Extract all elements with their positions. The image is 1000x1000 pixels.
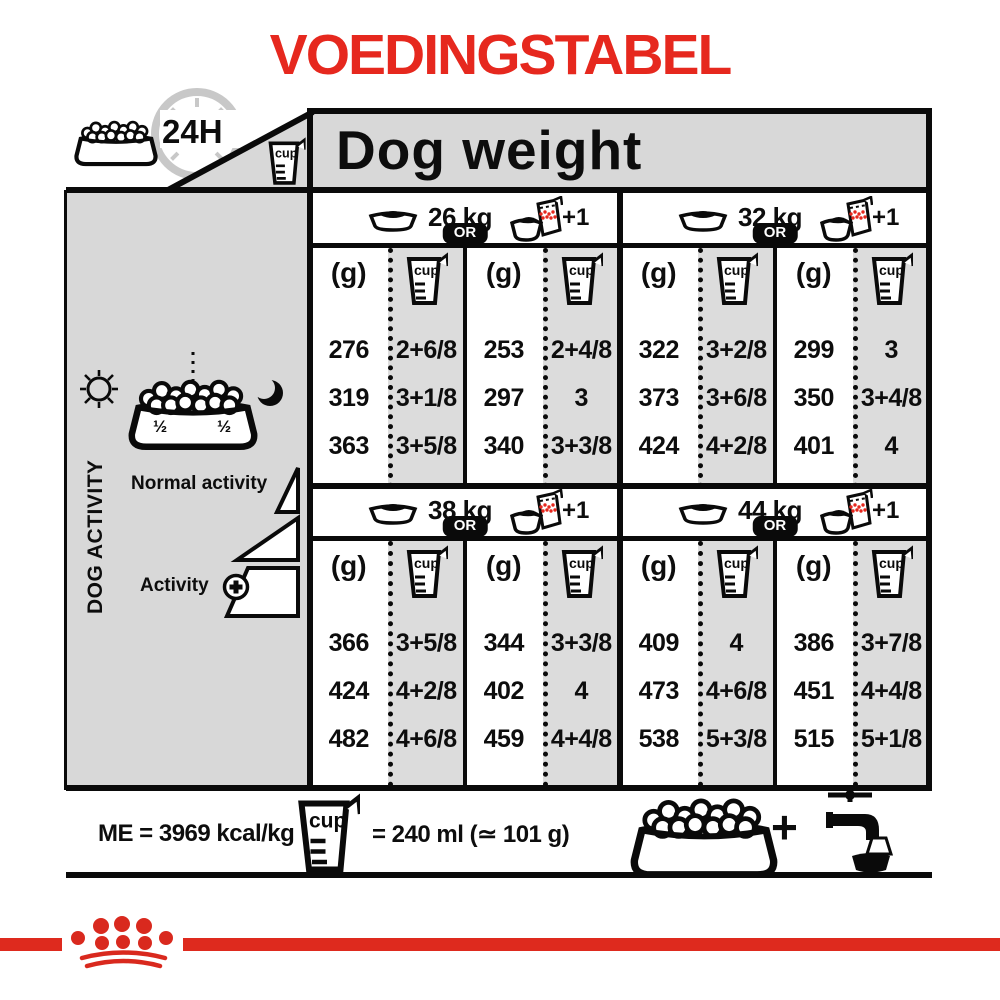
cell-cups: 3+5/8 (388, 629, 466, 658)
cell-cups: 3 (543, 384, 621, 413)
cup-unit-header (853, 545, 931, 599)
cell-cups: 5+3/8 (698, 725, 776, 754)
cup-unit-header (543, 545, 621, 599)
or-badge: OR (753, 223, 798, 244)
cell-cups: 4+2/8 (698, 432, 776, 461)
cup-icon (559, 545, 603, 599)
cup-unit-header (388, 545, 466, 599)
cell-cups: 4+2/8 (388, 677, 466, 706)
cell-grams: 424 (310, 677, 388, 706)
bowl-and-pouch-icon (820, 489, 873, 535)
cell-cups: 3+1/8 (388, 384, 466, 413)
brand-band-left (0, 938, 62, 951)
cell-grams: 344 (465, 629, 543, 658)
cell-cups: 4+4/8 (543, 725, 621, 754)
cell-grams: 451 (775, 677, 853, 706)
cell-cups: 4+4/8 (853, 677, 931, 706)
cup-equivalence-value: = 240 ml (≃ 101 g) (372, 820, 569, 849)
plus-circle-icon (220, 571, 252, 603)
cell-cups: 4 (853, 432, 931, 461)
grams-unit-header: (g) (775, 550, 853, 582)
plus-one-label: +1 (562, 497, 589, 525)
activity-plus-label: Activity (140, 575, 209, 597)
weight-section-44kg: 44 kg +1 OR (g) (g) 409 4 386 3+7/8 473 … (620, 488, 930, 787)
or-badge: OR (443, 516, 488, 537)
grams-unit-header: (g) (310, 257, 388, 289)
grams-unit-header: (g) (465, 257, 543, 289)
grams-unit-header: (g) (310, 550, 388, 582)
cell-grams: 515 (775, 725, 853, 754)
cell-grams: 424 (620, 432, 698, 461)
cell-cups: 4+6/8 (388, 725, 466, 754)
cup-unit-header (698, 252, 776, 306)
footer-bottom-rule (66, 872, 932, 878)
grams-unit-header: (g) (465, 550, 543, 582)
cell-cups: 3+2/8 (698, 336, 776, 365)
cell-cups: 5+1/8 (853, 725, 931, 754)
cell-grams: 299 (775, 336, 853, 365)
cell-cups: 3+5/8 (388, 432, 466, 461)
cell-cups: 4+6/8 (698, 677, 776, 706)
half-left-label: ½ (153, 417, 167, 436)
cup-icon (404, 545, 448, 599)
water-tap-icon (812, 786, 894, 878)
page-title: VOEDINGSTABEL (0, 22, 1000, 88)
cup-unit-header (853, 252, 931, 306)
day-night-ration-icon: ½ ½ (67, 340, 307, 470)
grams-unit-header: (g) (775, 257, 853, 289)
cup-icon (869, 252, 913, 306)
cell-cups: 2+6/8 (388, 336, 466, 365)
cell-grams: 366 (310, 629, 388, 658)
brand-band-right (183, 938, 1000, 951)
cup-unit-header (698, 545, 776, 599)
cell-cups: 2+4/8 (543, 336, 621, 365)
cell-grams: 297 (465, 384, 543, 413)
cup-icon (714, 545, 758, 599)
cell-grams: 319 (310, 384, 388, 413)
cell-grams: 350 (775, 384, 853, 413)
cup-icon (404, 252, 448, 306)
cell-cups: 3+7/8 (853, 629, 931, 658)
sun-icon (80, 370, 118, 408)
weight-section-32kg: 32 kg +1 OR (g) (g) 322 3+2/8 299 3 373 … (620, 195, 930, 488)
cell-grams: 386 (775, 629, 853, 658)
cell-grams: 473 (620, 677, 698, 706)
cell-cups: 3+4/8 (853, 384, 931, 413)
cell-cups: 3+6/8 (698, 384, 776, 413)
table-top-rule (66, 187, 932, 193)
cell-grams: 322 (620, 336, 698, 365)
or-badge: OR (443, 223, 488, 244)
bowl-and-pouch-icon (510, 196, 563, 242)
plus-one-label: +1 (872, 497, 899, 525)
cell-grams: 253 (465, 336, 543, 365)
table-bottom-rule (66, 785, 932, 791)
weight-section-38kg: 38 kg +1 OR (g) (g) 366 3+5/8 344 3+3/8 … (310, 488, 620, 787)
cell-cups: 3+3/8 (543, 432, 621, 461)
cup-icon (869, 545, 913, 599)
cell-cups: 3+3/8 (543, 629, 621, 658)
cell-grams: 409 (620, 629, 698, 658)
energy-value: ME = 3969 kcal/kg (98, 820, 294, 848)
cup-icon (714, 252, 758, 306)
cell-grams: 402 (465, 677, 543, 706)
table-left-rule (307, 108, 313, 791)
cup-icon (294, 793, 360, 875)
cell-grams: 363 (310, 432, 388, 461)
cup-icon (559, 252, 603, 306)
moon-icon (253, 377, 283, 406)
table-right-rule (926, 108, 932, 791)
half-half-bowl-icon: ½ ½ (132, 382, 254, 447)
cup-unit-header (388, 252, 466, 306)
feeding-table-label: cup (0, 0, 1000, 1000)
cell-grams: 401 (775, 432, 853, 461)
plus-one-label: +1 (872, 204, 899, 232)
cup-unit-header (543, 252, 621, 306)
bowl-and-pouch-icon (510, 489, 563, 535)
cell-grams: 340 (465, 432, 543, 461)
header-top-rule (308, 108, 932, 114)
dog-activity-axis-label: DOG ACTIVITY (84, 459, 108, 614)
food-bowl-icon (628, 790, 780, 878)
dog-weight-title: Dog weight (336, 118, 642, 182)
cup-icon (266, 137, 306, 187)
sidebar-left-rule (64, 190, 67, 790)
cell-grams: 373 (620, 384, 698, 413)
cell-grams: 459 (465, 725, 543, 754)
half-right-label: ½ (217, 417, 231, 436)
table-center-rule (617, 192, 623, 790)
cell-cups: 3 (853, 336, 931, 365)
royal-canin-crown-logo (56, 905, 186, 977)
grams-unit-header: (g) (620, 550, 698, 582)
weight-section-26kg: 26 kg +1 OR (g) (g) 276 2+6/8 253 2+4/8 … (310, 195, 620, 488)
cell-grams: 482 (310, 725, 388, 754)
food-bowl-icon (76, 122, 155, 164)
cell-cups: 4 (698, 629, 776, 658)
plus-one-label: +1 (562, 204, 589, 232)
plus-sign: + (771, 800, 798, 854)
bowl-and-pouch-icon (820, 196, 873, 242)
or-badge: OR (753, 516, 798, 537)
cell-grams: 538 (620, 725, 698, 754)
cell-grams: 276 (310, 336, 388, 365)
cell-cups: 4 (543, 677, 621, 706)
grams-unit-header: (g) (620, 257, 698, 289)
